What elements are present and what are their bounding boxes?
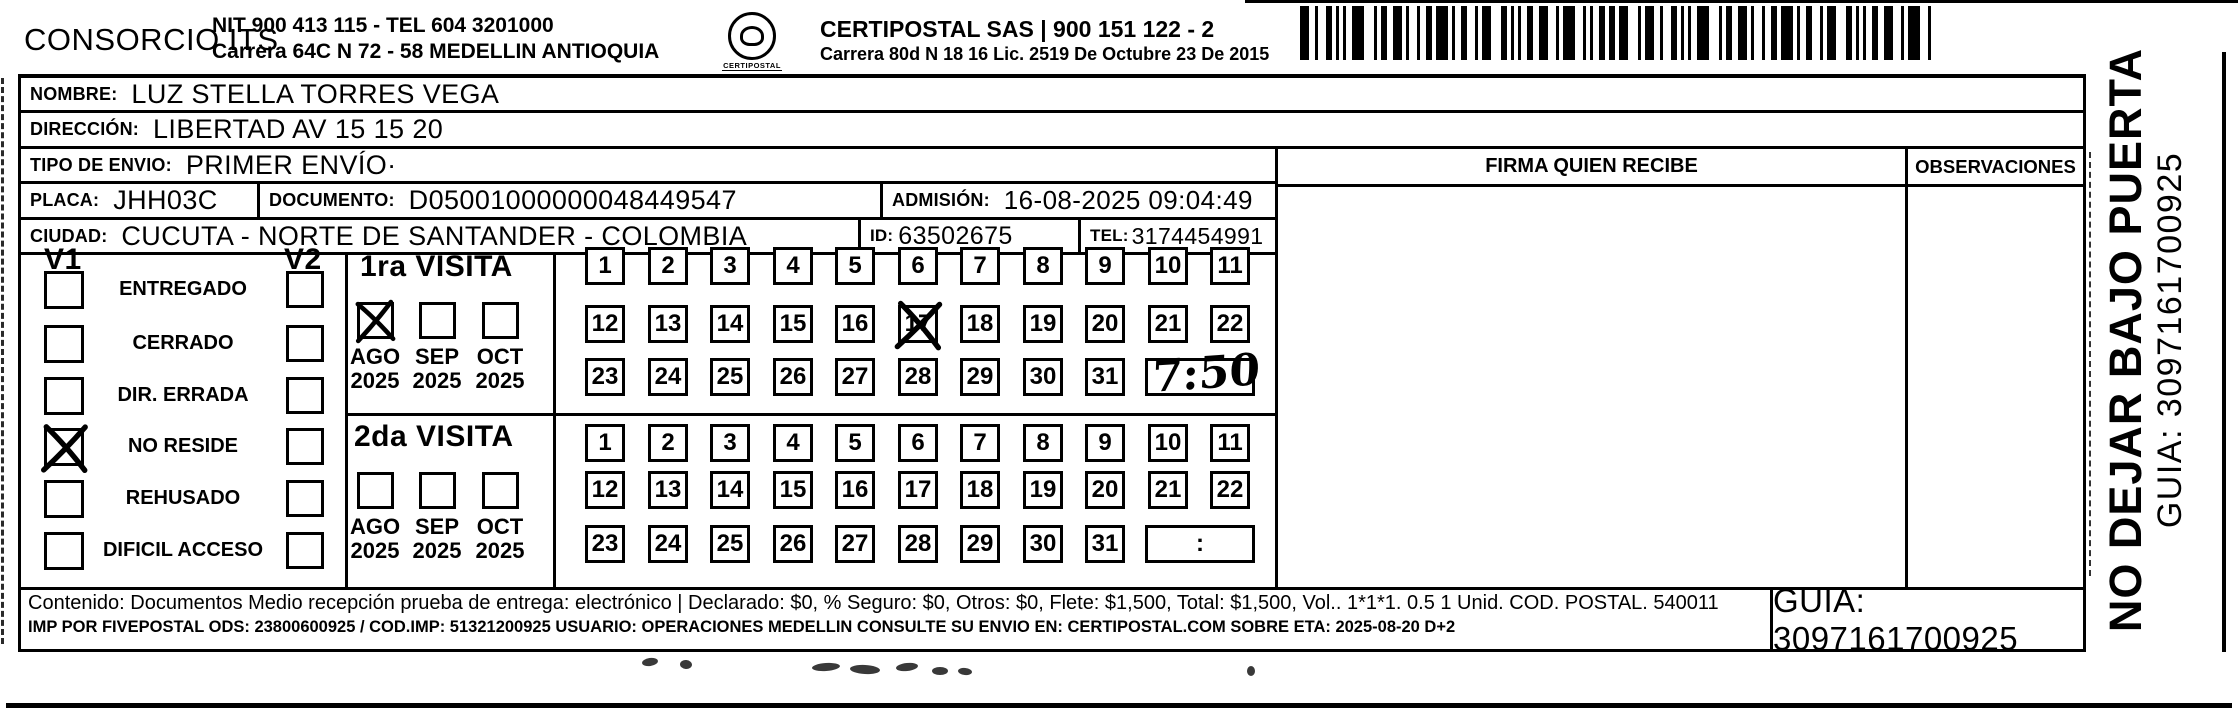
second-visit-day-7: 7 [960, 424, 1000, 462]
first-visit-day-30: 30 [1023, 358, 1063, 396]
barcode-bar [1326, 6, 1332, 60]
first-visit-day-8: 8 [1023, 247, 1063, 285]
first-visit-day-31: 31 [1085, 358, 1125, 396]
second-visit-day-4: 4 [773, 424, 813, 462]
v1-checkbox-rehusado [44, 480, 84, 518]
second-visit-day-14: 14 [710, 471, 750, 509]
second-visit-day-11: 11 [1210, 424, 1250, 462]
first-visit-day-19: 19 [1023, 305, 1063, 343]
documento-label: DOCUMENTO: [269, 190, 395, 211]
barcode-bar [1681, 6, 1684, 60]
second-visit-day-31: 31 [1085, 525, 1125, 563]
tel-label: TEL: [1090, 226, 1129, 246]
second-visit-day-20: 20 [1085, 471, 1125, 509]
second-visit-day-10: 10 [1148, 424, 1188, 462]
barcode-bar [1374, 6, 1377, 60]
barcode-bar [1797, 6, 1800, 60]
second-visit-month-checkbox-ago [357, 472, 394, 509]
first-visit-day-21: 21 [1148, 305, 1188, 343]
barcode-bar [1671, 6, 1677, 60]
first-visit-day-10: 10 [1148, 247, 1188, 285]
barcode-bar [1511, 6, 1514, 60]
first-visit-day-24: 24 [648, 358, 688, 396]
nombre-row: NOMBRE: LUZ STELLA TORRES VEGA [18, 74, 2086, 113]
status-option-label-cerrado: CERRADO [90, 332, 276, 355]
barcode-bar [1697, 6, 1709, 60]
barcode-bar [1660, 6, 1663, 60]
first-visit-month-label-sep: SEP [407, 344, 467, 370]
placa-cell: PLACA: JHH03C [18, 181, 260, 220]
scan-edge-line-top [1245, 0, 2238, 3]
second-visit-month-label-sep: SEP [407, 514, 467, 540]
operator-address: Carrera 80d N 18 16 Lic. 2519 De Octubre… [820, 44, 1269, 65]
second-visit-day-23: 23 [585, 525, 625, 563]
first-visit-day-5: 5 [835, 247, 875, 285]
side-note-guia: GUIA: 3097161700925 [2151, 48, 2189, 632]
second-visit-day-1: 1 [585, 424, 625, 462]
second-visit-day-28: 28 [898, 525, 938, 563]
placa-label: PLACA: [30, 190, 99, 211]
barcode-bar [1315, 6, 1318, 60]
barcode-bar [1482, 6, 1491, 60]
first-visit-day-7: 7 [960, 247, 1000, 285]
scan-smudge-7 [1247, 666, 1255, 676]
second-visit-time-box: : [1145, 525, 1255, 563]
scan-edge-line-bottom [6, 703, 2232, 708]
barcode-bar [1436, 6, 1448, 60]
barcode-bar [1556, 6, 1559, 60]
first-visit-day-1: 1 [585, 247, 625, 285]
v1-checkbox-dificil-acceso [44, 532, 84, 570]
admision-cell: ADMISIÓN: 16-08-2025 09:04:49 [880, 181, 1278, 220]
barcode-bar [1856, 6, 1859, 60]
second-visit-day-16: 16 [835, 471, 875, 509]
second-visit-day-22: 22 [1210, 471, 1250, 509]
scan-smudge-1 [680, 659, 693, 669]
first-visit-day-26: 26 [773, 358, 813, 396]
second-visit-day-18: 18 [960, 471, 1000, 509]
first-visit-day-4: 4 [773, 247, 813, 285]
documento-value: D05001000000048449547 [409, 185, 737, 216]
footer-imp-line: IMP POR FIVEPOSTAL ODS: 23800600925 / CO… [28, 618, 1455, 637]
barcode-bar [1452, 6, 1455, 60]
tipo-envio-cell: TIPO DE ENVIO: PRIMER ENVÍO· [18, 146, 1278, 184]
observaciones-header: OBSERVACIONES [1908, 149, 2083, 187]
first-visit-year-label-ago: 2025 [345, 368, 405, 394]
first-visit-day-15: 15 [773, 305, 813, 343]
second-visit-day-9: 9 [1085, 424, 1125, 462]
first-visit-day-20: 20 [1085, 305, 1125, 343]
first-visit-year-label-sep: 2025 [407, 368, 467, 394]
second-visit-day-8: 8 [1023, 424, 1063, 462]
stamp-caption: CERTIPOSTAL [722, 61, 782, 71]
shipping-label-form: CONSORCIO ITS NIT 900 413 115 - TEL 604 … [0, 0, 2238, 715]
company-nit-tel: NIT 900 413 115 - TEL 604 3201000 [212, 13, 554, 39]
first-visit-day-14: 14 [710, 305, 750, 343]
status-option-label-dir-errada: DIR. ERRADA [90, 384, 276, 407]
barcode-bar [1381, 6, 1387, 60]
first-visit-day-13: 13 [648, 305, 688, 343]
direccion-row: DIRECCIÓN: LIBERTAD AV 15 15 20 [18, 110, 2086, 149]
barcode-bar [1426, 6, 1432, 60]
second-visit-day-26: 26 [773, 525, 813, 563]
v2-checkbox-entregado [286, 271, 324, 308]
barcode-bar [1908, 6, 1920, 60]
first-visit-day-11: 11 [1210, 247, 1250, 285]
x-mark-icon-first-visit-ago [351, 297, 399, 345]
footer-content-line: Contenido: Documentos Medio recepción pr… [28, 592, 1719, 615]
tel-value: 3174454991 [1132, 223, 1264, 250]
barcode-bar [1352, 6, 1364, 60]
second-visit-day-21: 21 [1148, 471, 1188, 509]
stamp-emblem [740, 26, 764, 46]
second-visit-year-label-sep: 2025 [407, 538, 467, 564]
v2-checkbox-no-reside [286, 428, 324, 465]
v2-checkbox-dir-errada [286, 377, 324, 414]
barcode-bar [1336, 6, 1339, 60]
barcode-bar [1518, 6, 1521, 60]
scan-edge-dashes-right [2089, 152, 2091, 576]
second-visit-day-17: 17 [898, 471, 938, 509]
scan-edge-line-right [2222, 52, 2226, 652]
v1-checkbox-cerrado [44, 325, 84, 363]
first-visit-title: 1ra VISITA [360, 250, 513, 284]
first-visit-day-12: 12 [585, 305, 625, 343]
v2-checkbox-dificil-acceso [286, 532, 324, 569]
v2-checkbox-cerrado [286, 325, 324, 362]
first-visit-day-18: 18 [960, 305, 1000, 343]
first-visit-day-6: 6 [898, 247, 938, 285]
scan-smudge-6 [958, 667, 973, 675]
barcode-bar [1393, 6, 1402, 60]
second-visit-day-30: 30 [1023, 525, 1063, 563]
second-visit-day-5: 5 [835, 424, 875, 462]
first-visit-month-checkbox-sep [419, 302, 456, 339]
barcode-bar [1583, 6, 1586, 60]
barcode-bar [1719, 6, 1722, 60]
nombre-label: NOMBRE: [30, 84, 117, 105]
second-visit-day-13: 13 [648, 471, 688, 509]
observaciones-column: OBSERVACIONES [1905, 146, 2086, 590]
status-option-label-dificil-acceso: DIFICIL ACCESO [90, 539, 276, 562]
barcode-bar [1738, 6, 1747, 60]
barcode-bar [1609, 6, 1615, 60]
first-visit-day-29: 29 [960, 358, 1000, 396]
id-label: ID: [870, 226, 893, 246]
barcode-bar [1846, 6, 1852, 60]
barcode-bar [1599, 6, 1605, 60]
first-visit-day-16: 16 [835, 305, 875, 343]
second-visit-day-2: 2 [648, 424, 688, 462]
second-visit-day-3: 3 [710, 424, 750, 462]
v1-checkbox-entregado [44, 271, 84, 309]
barcode-bar [1406, 6, 1409, 60]
barcode-bar [1884, 6, 1893, 60]
barcode-bar [1806, 6, 1812, 60]
first-visit-day-2: 2 [648, 247, 688, 285]
second-visit-month-checkbox-oct [482, 472, 519, 509]
scan-smudge-2 [812, 662, 840, 672]
second-visit-year-label-oct: 2025 [470, 538, 530, 564]
first-visit-day-27: 27 [835, 358, 875, 396]
second-visit-day-12: 12 [585, 471, 625, 509]
admision-value: 16-08-2025 09:04:49 [1004, 185, 1253, 216]
barcode-bar [1527, 6, 1533, 60]
firma-column: FIRMA QUIEN RECIBE [1275, 146, 1908, 590]
barcode-icon [1300, 6, 1950, 60]
certipostal-stamp-icon: CERTIPOSTAL [722, 12, 782, 71]
status-option-label-rehusado: REHUSADO [90, 487, 276, 510]
side-note: NO DEJAR BAJO PUERTA GUIA: 3097161700925 [2101, 48, 2189, 632]
barcode-bar [1563, 6, 1575, 60]
first-visit-day-23: 23 [585, 358, 625, 396]
second-visit-month-label-oct: OCT [470, 514, 530, 540]
barcode-bar [1475, 6, 1478, 60]
barcode-bar [1539, 6, 1548, 60]
barcode-bar [1417, 6, 1420, 60]
status-option-label-entregado: ENTREGADO [90, 278, 276, 301]
barcode-bar [1827, 6, 1836, 60]
barcode-bar [1928, 6, 1931, 60]
first-visit-month-checkbox-oct [482, 302, 519, 339]
first-visit-day-3: 3 [710, 247, 750, 285]
second-visit-day-19: 19 [1023, 471, 1063, 509]
barcode-bar [1590, 6, 1593, 60]
first-visit-month-label-oct: OCT [470, 344, 530, 370]
x-mark-icon-first-visit-day-17 [891, 297, 948, 354]
barcode-bar [1751, 6, 1754, 60]
company-address: Carrera 64C N 72 - 58 MEDELLIN ANTIOQUIA [212, 39, 659, 65]
second-visit-title: 2da VISITA [354, 420, 513, 454]
scan-smudge-5 [932, 667, 948, 675]
barcode-bar [1901, 6, 1904, 60]
first-visit-day-22: 22 [1210, 305, 1250, 343]
scan-smudge-0 [642, 657, 659, 667]
second-visit-day-25: 25 [710, 525, 750, 563]
barcode-bar [1300, 6, 1309, 60]
operator-name: CERTIPOSTAL SAS | 900 151 122 - 2 [820, 16, 1214, 43]
barcode-bar [1863, 6, 1866, 60]
second-visit-day-6: 6 [898, 424, 938, 462]
scan-edge-dashes-left [1, 78, 4, 644]
documento-cell: DOCUMENTO: D05001000000048449547 [257, 181, 883, 220]
barcode-bar [1872, 6, 1878, 60]
second-visit-day-29: 29 [960, 525, 1000, 563]
first-visit-month-label-ago: AGO [345, 344, 405, 370]
barcode-bar [1461, 6, 1467, 60]
tipo-envio-value: PRIMER ENVÍO· [186, 150, 397, 181]
v1-checkbox-dir-errada [44, 377, 84, 415]
barcode-bar [1820, 6, 1823, 60]
barcode-bar [1619, 6, 1628, 60]
barcode-bar [1688, 6, 1691, 60]
stamp-circle [728, 12, 776, 60]
barcode-bar [1762, 6, 1765, 60]
nombre-value: LUZ STELLA TORRES VEGA [131, 79, 499, 110]
barcode-bar [1501, 6, 1507, 60]
first-visit-day-25: 25 [710, 358, 750, 396]
barcode-bar [1638, 6, 1641, 60]
first-visit-year-label-oct: 2025 [470, 368, 530, 394]
second-visit-day-27: 27 [835, 525, 875, 563]
barcode-bar [1771, 6, 1777, 60]
scan-smudge-3 [850, 664, 880, 675]
barcode-bar [1726, 6, 1732, 60]
barcode-bar [1781, 6, 1793, 60]
direccion-label: DIRECCIÓN: [30, 119, 139, 140]
status-option-label-no-reside: NO RESIDE [90, 435, 276, 458]
footer-guia: GUIA: 3097161700925 [1773, 587, 2086, 652]
second-visit-month-checkbox-sep [419, 472, 456, 509]
placa-value: JHH03C [113, 185, 217, 216]
barcode-bar [1343, 6, 1346, 60]
x-mark-icon-no-reside [37, 420, 93, 476]
first-visit-day-9: 9 [1085, 247, 1125, 285]
side-note-warning: NO DEJAR BAJO PUERTA [2101, 48, 2151, 632]
second-visit-day-24: 24 [648, 525, 688, 563]
second-visit-day-15: 15 [773, 471, 813, 509]
scan-smudge-4 [896, 662, 919, 672]
first-visit-handwritten-time: 7:50 [1151, 344, 1261, 403]
first-visit-day-28: 28 [898, 358, 938, 396]
second-visit-year-label-ago: 2025 [345, 538, 405, 564]
tipo-envio-label: TIPO DE ENVIO: [30, 155, 172, 176]
second-visit-month-label-ago: AGO [345, 514, 405, 540]
firma-header: FIRMA QUIEN RECIBE [1278, 149, 1905, 187]
admision-label: ADMISIÓN: [892, 190, 990, 211]
v2-checkbox-rehusado [286, 480, 324, 517]
barcode-bar [1645, 6, 1654, 60]
direccion-value: LIBERTAD AV 15 15 20 [153, 114, 443, 145]
